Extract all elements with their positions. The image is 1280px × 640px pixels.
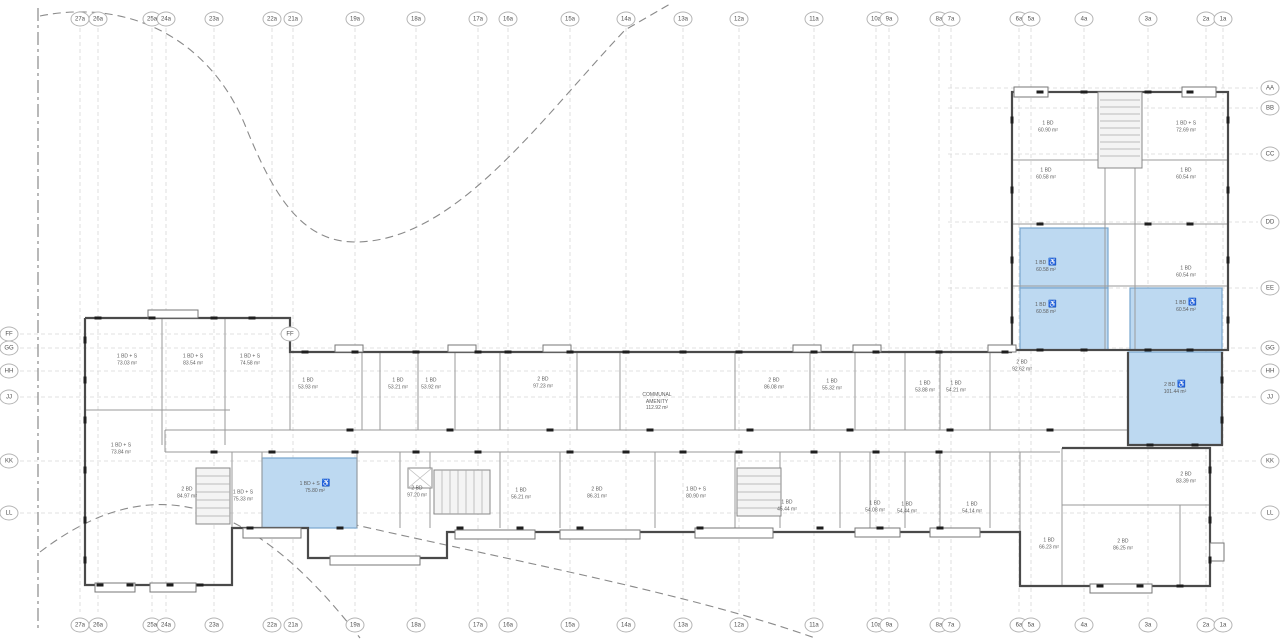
room-label: 1 BD♿60.58 m²: [1035, 258, 1057, 274]
grid-bubble-16a: 16a: [499, 12, 518, 27]
grid-bubble-ff: FF: [281, 327, 300, 342]
room-label: 1 BD56.21 m²: [511, 488, 531, 501]
room-label: 1 BD60.58 m²: [1036, 168, 1056, 181]
amenity-area: 112.92 m²: [617, 405, 697, 412]
grid-bubble-22a: 22a: [263, 12, 282, 27]
room-label: 2 BD84.97 m²: [177, 487, 197, 500]
grid-bubble-22a: 22a: [263, 618, 282, 633]
grid-bubble-11a: 11a: [805, 12, 824, 27]
grid-bubble-18a: 18a: [407, 618, 426, 633]
room-label: 1 BD60.54 m²: [1176, 168, 1196, 181]
left-stair: [196, 468, 230, 524]
room-label: 1 BD45.44 m²: [777, 500, 797, 513]
site-boundary: [38, 4, 815, 638]
grid-bubble-gg: GG: [0, 341, 19, 356]
room-label: 1 BD + S♿75.80 m²: [300, 479, 331, 495]
room-label: 1 BD53.93 m²: [298, 378, 318, 391]
room-label: 2 BD86.31 m²: [587, 487, 607, 500]
grid-bubble-19a: 19a: [346, 618, 365, 633]
grid-bubble-4a: 4a: [1075, 618, 1094, 633]
grid-bubble-hh: HH: [0, 364, 19, 379]
grid-bubble-14a: 14a: [617, 12, 636, 27]
grid-bubble-3a: 3a: [1139, 12, 1158, 27]
grid-bubble-hh: HH: [1261, 364, 1280, 379]
room-label: 1 BD + S80.90 m²: [686, 487, 706, 500]
grid-bubble-gg: GG: [1261, 341, 1280, 356]
grid-bubble-27a: 27a: [71, 12, 90, 27]
floor-plan-drawing: [0, 0, 1280, 640]
highlighted-unit-1: [1020, 228, 1108, 288]
grid-bubble-kk: KK: [1261, 454, 1280, 469]
grid-bubble-ll: LL: [0, 506, 19, 521]
accessible-icon: ♿: [1188, 299, 1197, 306]
grid-bubble-21a: 21a: [284, 12, 303, 27]
room-label: 2 BD♿101.44 m²: [1164, 380, 1187, 396]
grid-bubble-kk: KK: [0, 454, 19, 469]
grid-bubble-19a: 19a: [346, 12, 365, 27]
grid-bubble-26a: 26a: [89, 618, 108, 633]
grid-bubble-jj: JJ: [0, 390, 19, 405]
grid-bubble-24a: 24a: [157, 12, 176, 27]
tower-stair: [1098, 92, 1142, 168]
room-label: 1 BD55.32 m²: [822, 379, 842, 392]
grid-bubble-23a: 23a: [205, 618, 224, 633]
grid-bubble-5a: 5a: [1022, 12, 1041, 27]
grid-bubble-16a: 16a: [499, 618, 518, 633]
room-label: 2 BD97.20 m²: [407, 486, 427, 499]
grid-bubble-5a: 5a: [1022, 618, 1041, 633]
highlighted-unit-2: [1020, 288, 1108, 350]
room-label: 1 BD♿60.58 m²: [1035, 300, 1057, 316]
grid-bubble-bb: BB: [1261, 101, 1280, 116]
accessible-icon: ♿: [322, 480, 331, 487]
grid-bubble-17a: 17a: [469, 12, 488, 27]
grid-bubble-ll: LL: [1261, 506, 1280, 521]
accessible-icon: ♿: [1048, 301, 1057, 308]
grid-bubble-23a: 23a: [205, 12, 224, 27]
room-label: 1 BD53.21 m²: [388, 378, 408, 391]
grid-bubble-11a: 11a: [805, 618, 824, 633]
room-label: 2 BD97.23 m²: [533, 377, 553, 390]
room-label: 1 BD53.88 m²: [915, 381, 935, 394]
highlighted-unit-4: [1128, 352, 1222, 445]
room-label: 1 BD + S75.33 m²: [233, 490, 253, 503]
room-label: 2 BD86.25 m²: [1113, 539, 1133, 552]
grid-bubble-17a: 17a: [469, 618, 488, 633]
grid-bubble-4a: 4a: [1075, 12, 1094, 27]
grid-bubble-dd: DD: [1261, 215, 1280, 230]
room-label: 1 BD + S72.69 m²: [1176, 121, 1196, 134]
room-label: 1 BD + S74.58 m²: [240, 354, 260, 367]
accessible-icon: ♿: [1177, 381, 1186, 388]
mid-stair: [434, 470, 490, 514]
room-label: 1 BD + S83.54 m²: [183, 354, 203, 367]
room-label: 1 BD + S73.03 m²: [117, 354, 137, 367]
grid-bubble-1a: 1a: [1214, 12, 1233, 27]
grid-bubble-jj: JJ: [1261, 390, 1280, 405]
accessible-icon: ♿: [1048, 259, 1057, 266]
grid-bubble-26a: 26a: [89, 12, 108, 27]
grid-bubble-9a: 9a: [880, 618, 899, 633]
room-label: 1 BD53.92 m²: [421, 378, 441, 391]
grid-bubble-1a: 1a: [1214, 618, 1233, 633]
grid-bubble-aa: AA: [1261, 81, 1280, 96]
room-label: 1 BD54.21 m²: [946, 381, 966, 394]
room-label: 2 BD92.62 m²: [1012, 360, 1032, 373]
grid-bubble-18a: 18a: [407, 12, 426, 27]
grid-bubble-12a: 12a: [730, 618, 749, 633]
grid-bubble-7a: 7a: [942, 618, 961, 633]
grid-bubble-ee: EE: [1261, 281, 1280, 296]
grid-bubble-21a: 21a: [284, 618, 303, 633]
room-label: 2 BD86.08 m²: [764, 378, 784, 391]
grid-bubble-ff: FF: [0, 327, 19, 342]
room-label: 1 BD♿60.54 m²: [1175, 298, 1197, 314]
communal-amenity-label: COMMUNAL AMENITY 112.92 m²: [617, 392, 697, 412]
room-label: 2 BD83.39 m²: [1176, 472, 1196, 485]
grid-bubble-13a: 13a: [674, 12, 693, 27]
room-label: 1 BD + S73.84 m²: [111, 443, 131, 456]
room-label: 1 BD66.23 m²: [1039, 538, 1059, 551]
grid-bubble-13a: 13a: [674, 618, 693, 633]
room-label: 1 BD54.44 m²: [897, 502, 917, 515]
grid-bubble-9a: 9a: [880, 12, 899, 27]
room-label: 1 BD54.08 m²: [865, 501, 885, 514]
grid-bubble-3a: 3a: [1139, 618, 1158, 633]
grid-bubble-14a: 14a: [617, 618, 636, 633]
room-label: 1 BD60.90 m²: [1038, 121, 1058, 134]
grid-bubble-15a: 15a: [561, 12, 580, 27]
grid-bubble-15a: 15a: [561, 618, 580, 633]
room-label: 1 BD54.14 m²: [962, 502, 982, 515]
grid-bubble-cc: CC: [1261, 147, 1280, 162]
grid-bubble-24a: 24a: [157, 618, 176, 633]
grid-bubble-27a: 27a: [71, 618, 90, 633]
room-label: 1 BD60.54 m²: [1176, 266, 1196, 279]
grid-bubble-7a: 7a: [942, 12, 961, 27]
grid-bubble-12a: 12a: [730, 12, 749, 27]
floor-plan-canvas: COMMUNAL AMENITY 112.92 m² 27a27a26a26a2…: [0, 0, 1280, 640]
